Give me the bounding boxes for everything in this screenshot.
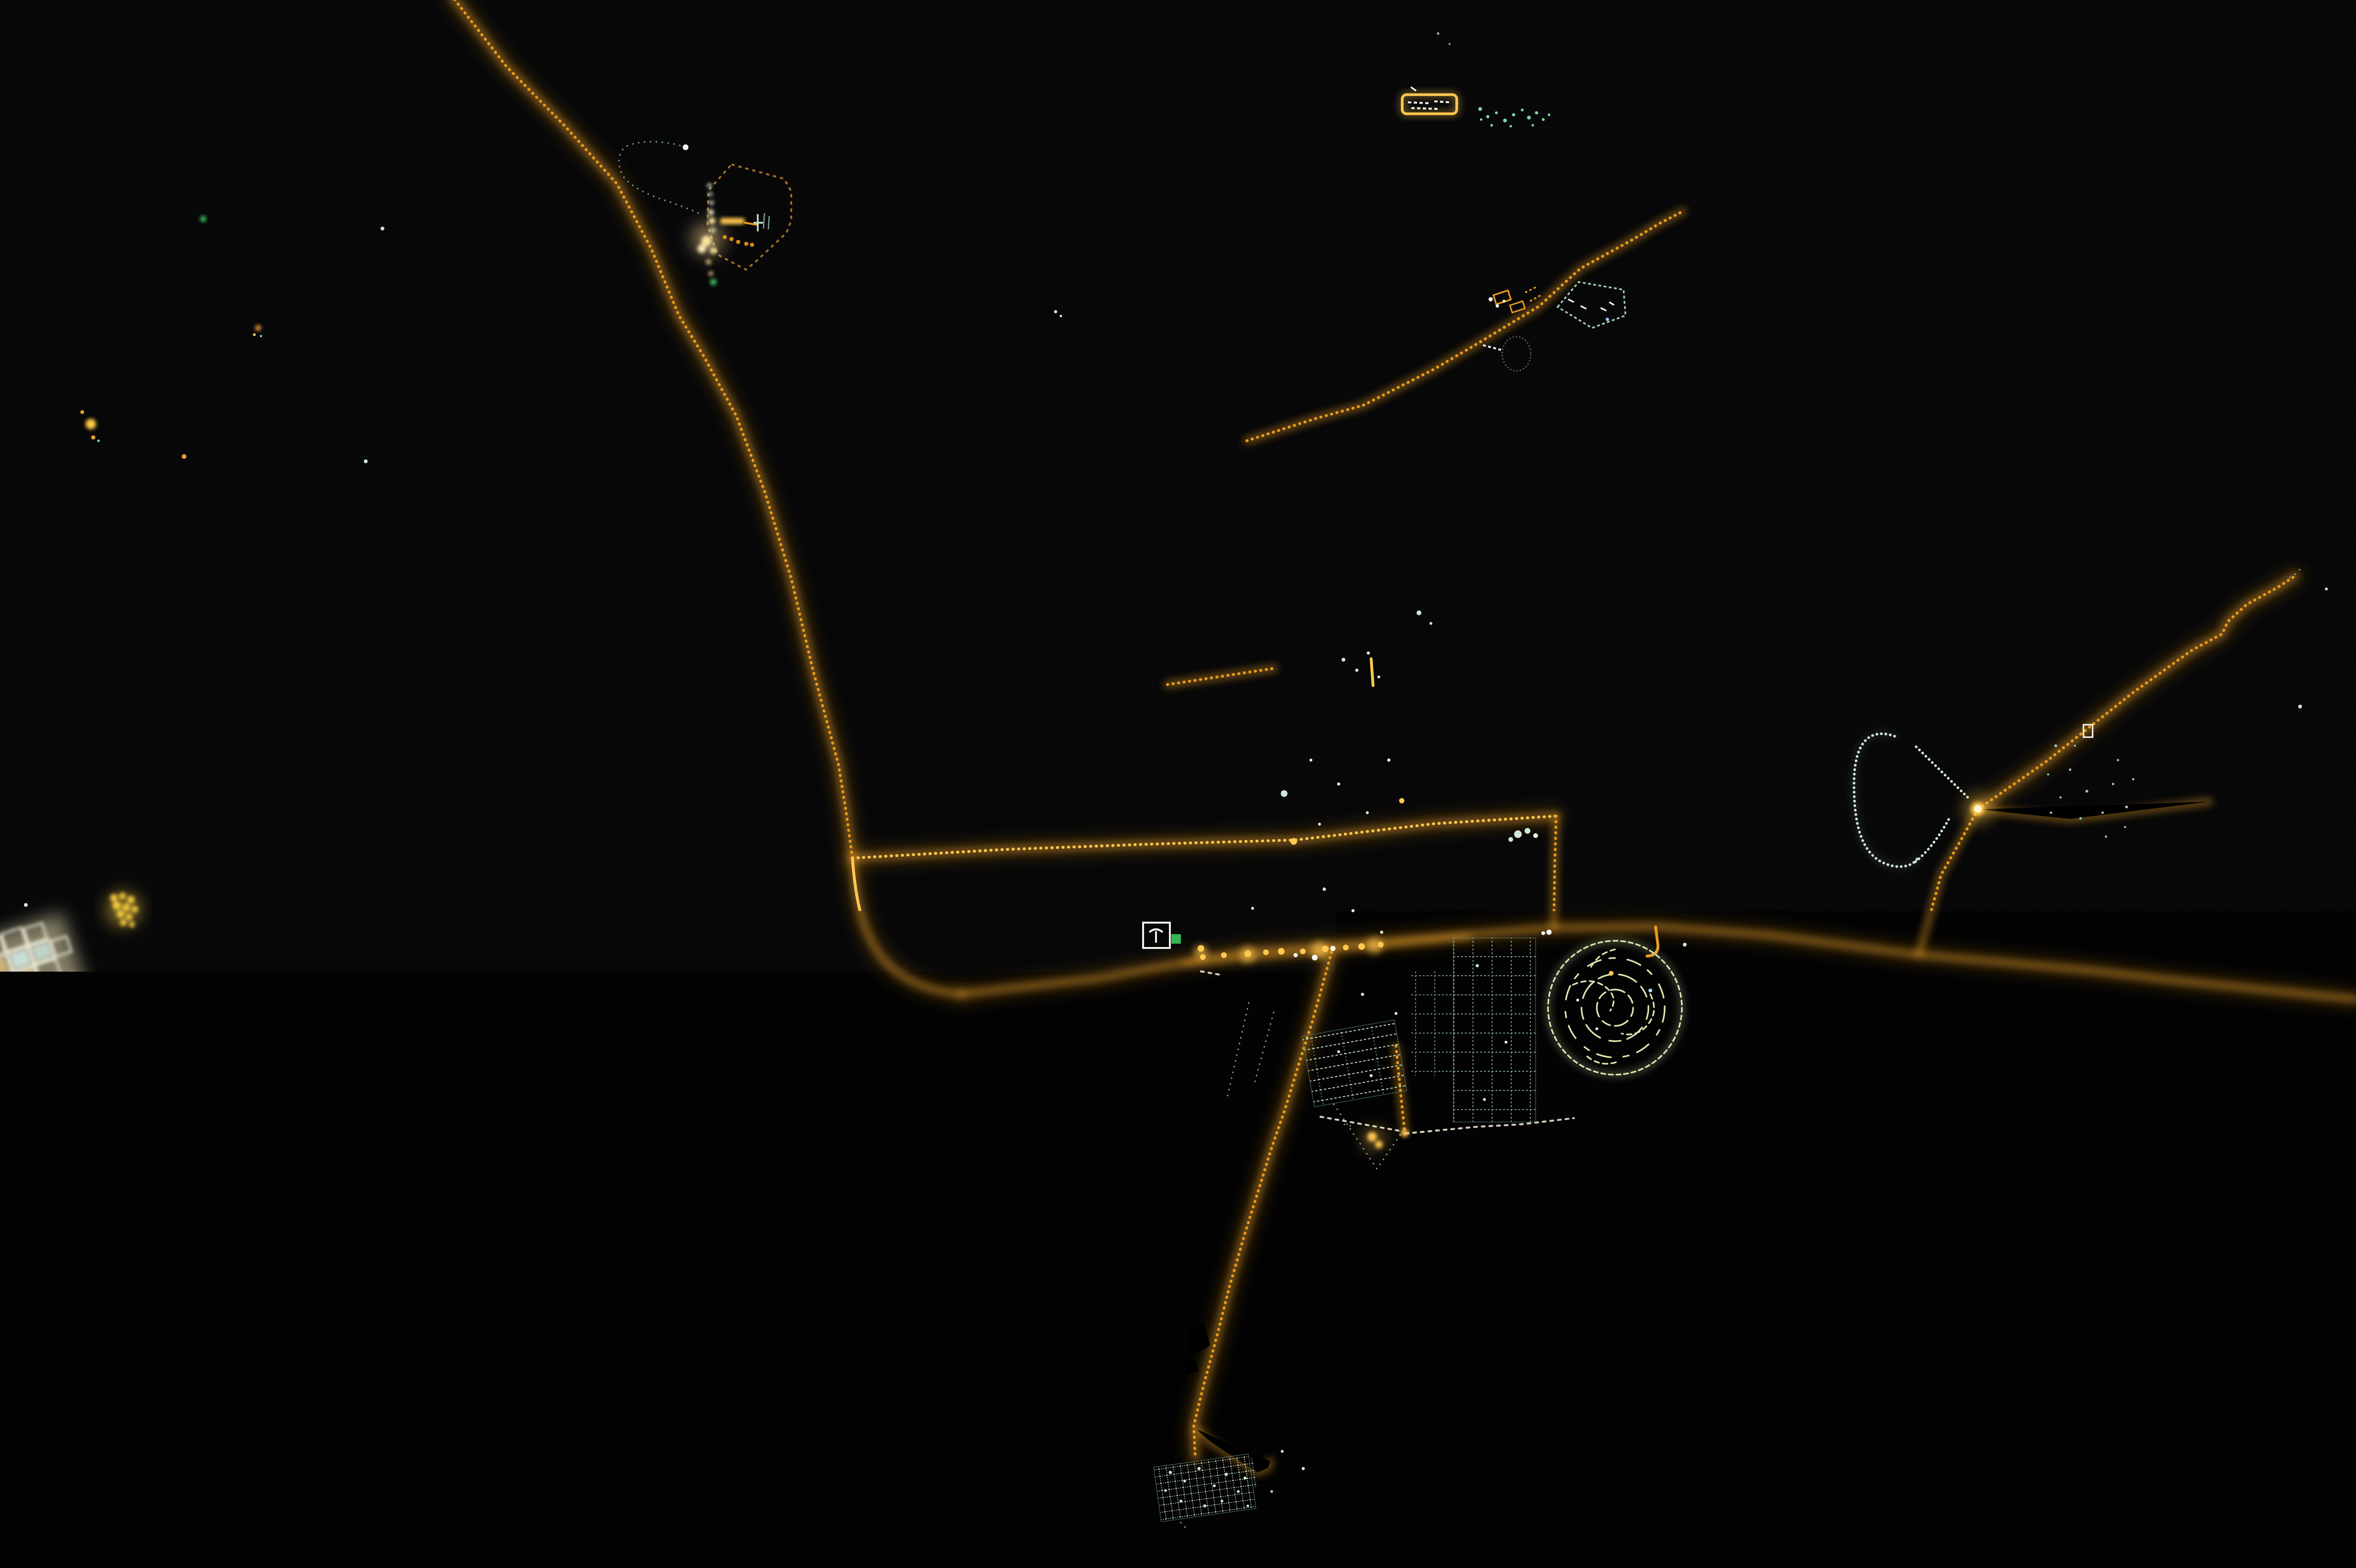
red-court xyxy=(1147,988,1155,993)
nw-loop-gate-light xyxy=(683,144,688,150)
night-scene-canvas xyxy=(0,0,2356,1568)
maze-orange-light xyxy=(1609,971,1614,976)
east-grid xyxy=(1453,938,1536,1122)
iss-night-photo: Astronaut night photograph of an isolate… xyxy=(0,0,2356,1568)
eastern-interchange xyxy=(1963,795,1992,823)
maze-blue-light xyxy=(1648,989,1652,992)
blue-court xyxy=(1129,988,1139,996)
stadium-green-patch xyxy=(1171,934,1181,944)
mid-grid-west xyxy=(1220,883,1287,942)
nw-flare-bar xyxy=(720,218,745,224)
south-grid-east-tall xyxy=(1410,970,1458,1076)
south-grid-west xyxy=(1220,976,1292,1005)
mid-grid-east-sliver xyxy=(1428,903,1458,943)
city-top-vertical-stub xyxy=(1371,659,1373,686)
green-court xyxy=(1129,1002,1141,1008)
dark-red-court xyxy=(1147,998,1154,1003)
nw-green-light xyxy=(710,279,717,285)
pentagon-blue-light xyxy=(1605,317,1609,321)
